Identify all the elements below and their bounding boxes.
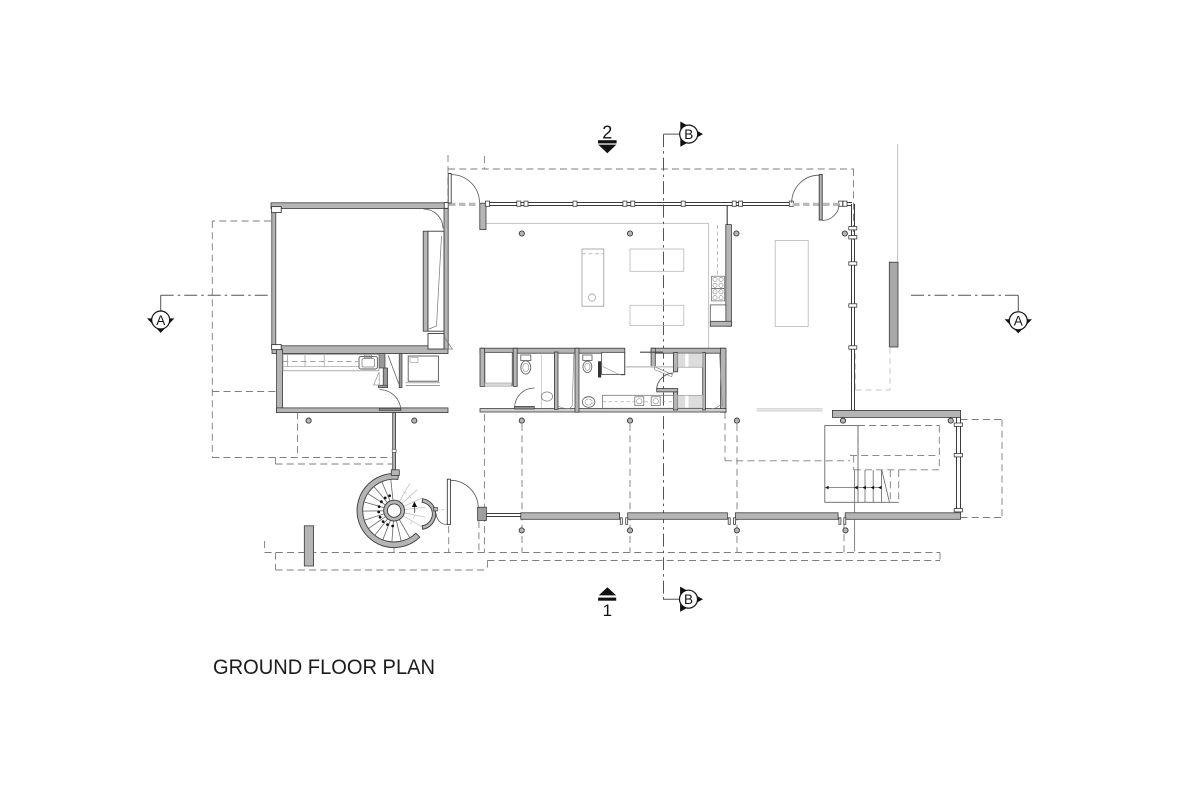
svg-text:GROUND FLOOR PLAN: GROUND FLOOR PLAN xyxy=(213,656,435,679)
svg-text:B: B xyxy=(684,127,693,142)
svg-text:A: A xyxy=(156,313,165,328)
svg-text:B: B xyxy=(684,592,693,607)
svg-text:A: A xyxy=(1014,314,1023,329)
svg-text:2: 2 xyxy=(602,122,612,142)
svg-text:1: 1 xyxy=(603,601,612,620)
